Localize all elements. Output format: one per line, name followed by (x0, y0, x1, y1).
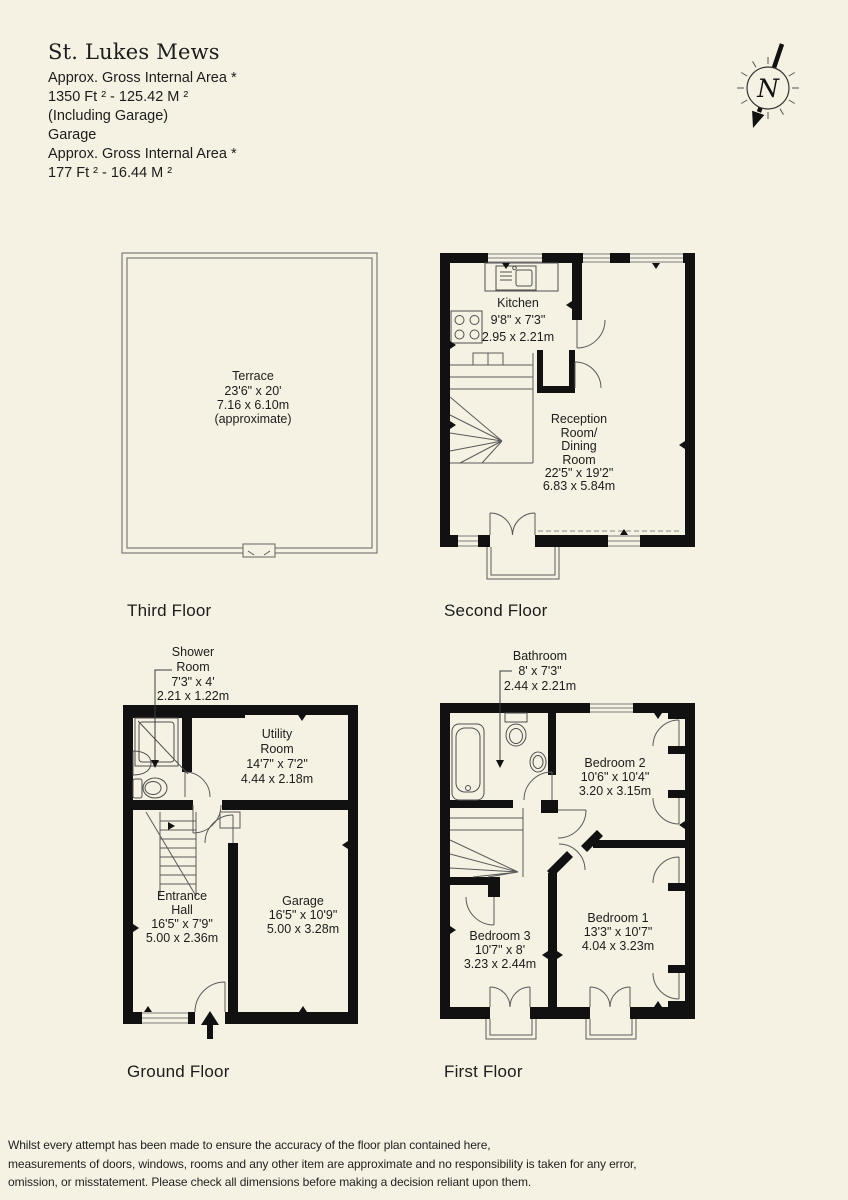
area-line: 1350 Ft ² - 125.42 M ² (48, 88, 237, 107)
basin-icon (133, 751, 151, 775)
compass: N (720, 28, 816, 143)
window (458, 254, 683, 546)
sink-icon (496, 266, 536, 290)
svg-text:Bedroom 3: Bedroom 3 (469, 929, 530, 943)
balcony (487, 547, 559, 579)
area-line: Approx. Gross Internal Area * (48, 145, 237, 164)
svg-text:22'5" x 19'2": 22'5" x 19'2" (545, 466, 614, 480)
svg-text:Bathroom: Bathroom (513, 649, 567, 663)
svg-text:16'5" x 10'9": 16'5" x 10'9" (269, 908, 338, 922)
svg-text:4.44 x 2.18m: 4.44 x 2.18m (241, 772, 313, 786)
third-floor-plan: Terrace 23'6" x 20' 7.16 x 6.10m (approx… (108, 245, 388, 575)
walls (440, 253, 695, 547)
floor-label-third: Third Floor (127, 601, 211, 621)
floorplan-page: St. Lukes Mews Approx. Gross Internal Ar… (0, 0, 848, 1200)
svg-text:2.21 x 1.22m: 2.21 x 1.22m (157, 689, 229, 703)
wardrobe-doors (653, 720, 679, 999)
disclaimer-line: Whilst every attempt has been made to en… (8, 1136, 637, 1155)
svg-text:2.44 x 2.21m: 2.44 x 2.21m (504, 679, 576, 693)
french-doors (490, 513, 535, 535)
title-block: St. Lukes Mews Approx. Gross Internal Ar… (48, 40, 237, 183)
bedroom3-label: Bedroom 3 10'7" x 8' 3.23 x 2.44m (464, 929, 536, 971)
area-line: 177 Ft ² - 16.44 M ² (48, 164, 237, 183)
svg-text:6.83 x 5.84m: 6.83 x 5.84m (543, 479, 615, 493)
ground-floor-plan: Shower Room 7'3" x 4' 2.21 x 1.22m Utili… (98, 640, 388, 1045)
basin-icon (530, 752, 546, 772)
toilet-icon (133, 778, 167, 798)
shower-room-label: Shower Room 7'3" x 4' 2.21 x 1.22m (157, 645, 229, 703)
bedroom2-label: Bedroom 2 10'6" x 10'4" 3.20 x 3.15m (579, 756, 651, 798)
svg-text:7.16 x 6.10m: 7.16 x 6.10m (217, 398, 289, 412)
walls (123, 705, 358, 1024)
terrace-room-label: Terrace 23'6" x 20' 7.16 x 6.10m (approx… (214, 369, 291, 426)
door-arc (575, 320, 605, 388)
floor-label-first: First Floor (444, 1062, 523, 1082)
svg-text:8' x 7'3": 8' x 7'3" (518, 664, 561, 678)
disclaimer-line: omission, or misstatement. Please check … (8, 1173, 637, 1192)
disclaimer-line: measurements of doors, windows, rooms an… (8, 1155, 637, 1174)
toilet-icon (505, 713, 527, 746)
first-floor-plan: Bathroom 8' x 7'3" 2.44 x 2.21m Bedroom … (428, 640, 718, 1050)
svg-text:5.00 x 3.28m: 5.00 x 3.28m (267, 922, 339, 936)
property-title: St. Lukes Mews (48, 40, 237, 64)
svg-text:Garage: Garage (282, 894, 324, 908)
svg-text:Utility: Utility (262, 727, 293, 741)
stairs (450, 353, 533, 463)
svg-text:Bedroom 2: Bedroom 2 (584, 756, 645, 770)
area-line: Approx. Gross Internal Area * (48, 69, 237, 88)
svg-text:10'6" x 10'4": 10'6" x 10'4" (581, 770, 650, 784)
balcony (486, 1019, 636, 1039)
svg-text:10'7" x 8': 10'7" x 8' (475, 943, 525, 957)
svg-text:Bedroom 1: Bedroom 1 (587, 911, 648, 925)
entrance-hall-label: Entrance Hall 16'5" x 7'9" 5.00 x 2.36m (146, 889, 218, 945)
window (142, 1013, 188, 1023)
svg-text:Kitchen: Kitchen (497, 296, 539, 310)
svg-text:16'5" x 7'9": 16'5" x 7'9" (151, 917, 213, 931)
floor-label-second: Second Floor (444, 601, 548, 621)
utility-room-label: Utility Room 14'7" x 7'2" 4.44 x 2.18m (241, 727, 313, 786)
wall-ticks (133, 715, 348, 1012)
svg-text:3.20 x 3.15m: 3.20 x 3.15m (579, 784, 651, 798)
svg-text:Room/: Room/ (561, 426, 598, 440)
shower-icon (135, 718, 188, 774)
area-line: (Including Garage) (48, 107, 237, 126)
svg-text:5.00 x 2.36m: 5.00 x 2.36m (146, 931, 218, 945)
entrance-arrow-icon (201, 1011, 219, 1039)
garage-label: Garage 16'5" x 10'9" 5.00 x 3.28m (267, 894, 339, 936)
disclaimer: Whilst every attempt has been made to en… (8, 1136, 637, 1192)
bathroom-label: Bathroom 8' x 7'3" 2.44 x 2.21m (504, 649, 576, 693)
svg-text:13'3" x 10'7": 13'3" x 10'7" (584, 925, 653, 939)
area-line: Garage (48, 126, 237, 145)
wall-ticks (450, 263, 685, 535)
hob-icon (451, 311, 482, 343)
svg-text:Shower: Shower (172, 645, 214, 659)
svg-text:(approximate): (approximate) (214, 412, 291, 426)
stairs (450, 808, 523, 877)
reception-room-label: Reception Room/ Dining Room 22'5" x 19'2… (543, 412, 615, 493)
bathtub-icon (452, 724, 484, 800)
svg-text:Room: Room (260, 742, 293, 756)
terrace-hatch (243, 544, 275, 557)
svg-text:3.23 x 2.44m: 3.23 x 2.44m (464, 957, 536, 971)
svg-text:7'3" x 4': 7'3" x 4' (171, 675, 214, 689)
svg-text:Dining: Dining (561, 439, 596, 453)
svg-text:Reception: Reception (551, 412, 607, 426)
svg-text:Room: Room (176, 660, 209, 674)
kitchen-room-label: Kitchen 9'8" x 7'3" 2.95 x 2.21m (482, 296, 554, 344)
svg-text:9'8" x 7'3": 9'8" x 7'3" (491, 313, 546, 327)
arrowhead-icon (752, 111, 764, 128)
svg-text:Entrance: Entrance (157, 889, 207, 903)
svg-text:4.04 x 3.23m: 4.04 x 3.23m (582, 939, 654, 953)
svg-text:Terrace: Terrace (232, 369, 274, 383)
svg-text:Hall: Hall (171, 903, 193, 917)
window (590, 704, 633, 712)
svg-text:23'6" x 20': 23'6" x 20' (224, 384, 281, 398)
second-floor-plan: Kitchen 9'8" x 7'3" 2.95 x 2.21m Recepti… (428, 245, 708, 590)
svg-text:2.95 x 2.21m: 2.95 x 2.21m (482, 330, 554, 344)
floor-label-ground: Ground Floor (127, 1062, 230, 1082)
french-doors (490, 987, 630, 1007)
svg-text:14'7" x 7'2": 14'7" x 7'2" (246, 757, 308, 771)
bedroom1-label: Bedroom 1 13'3" x 10'7" 4.04 x 3.23m (582, 911, 654, 953)
svg-text:Room: Room (562, 453, 595, 467)
north-label: N (756, 74, 780, 103)
